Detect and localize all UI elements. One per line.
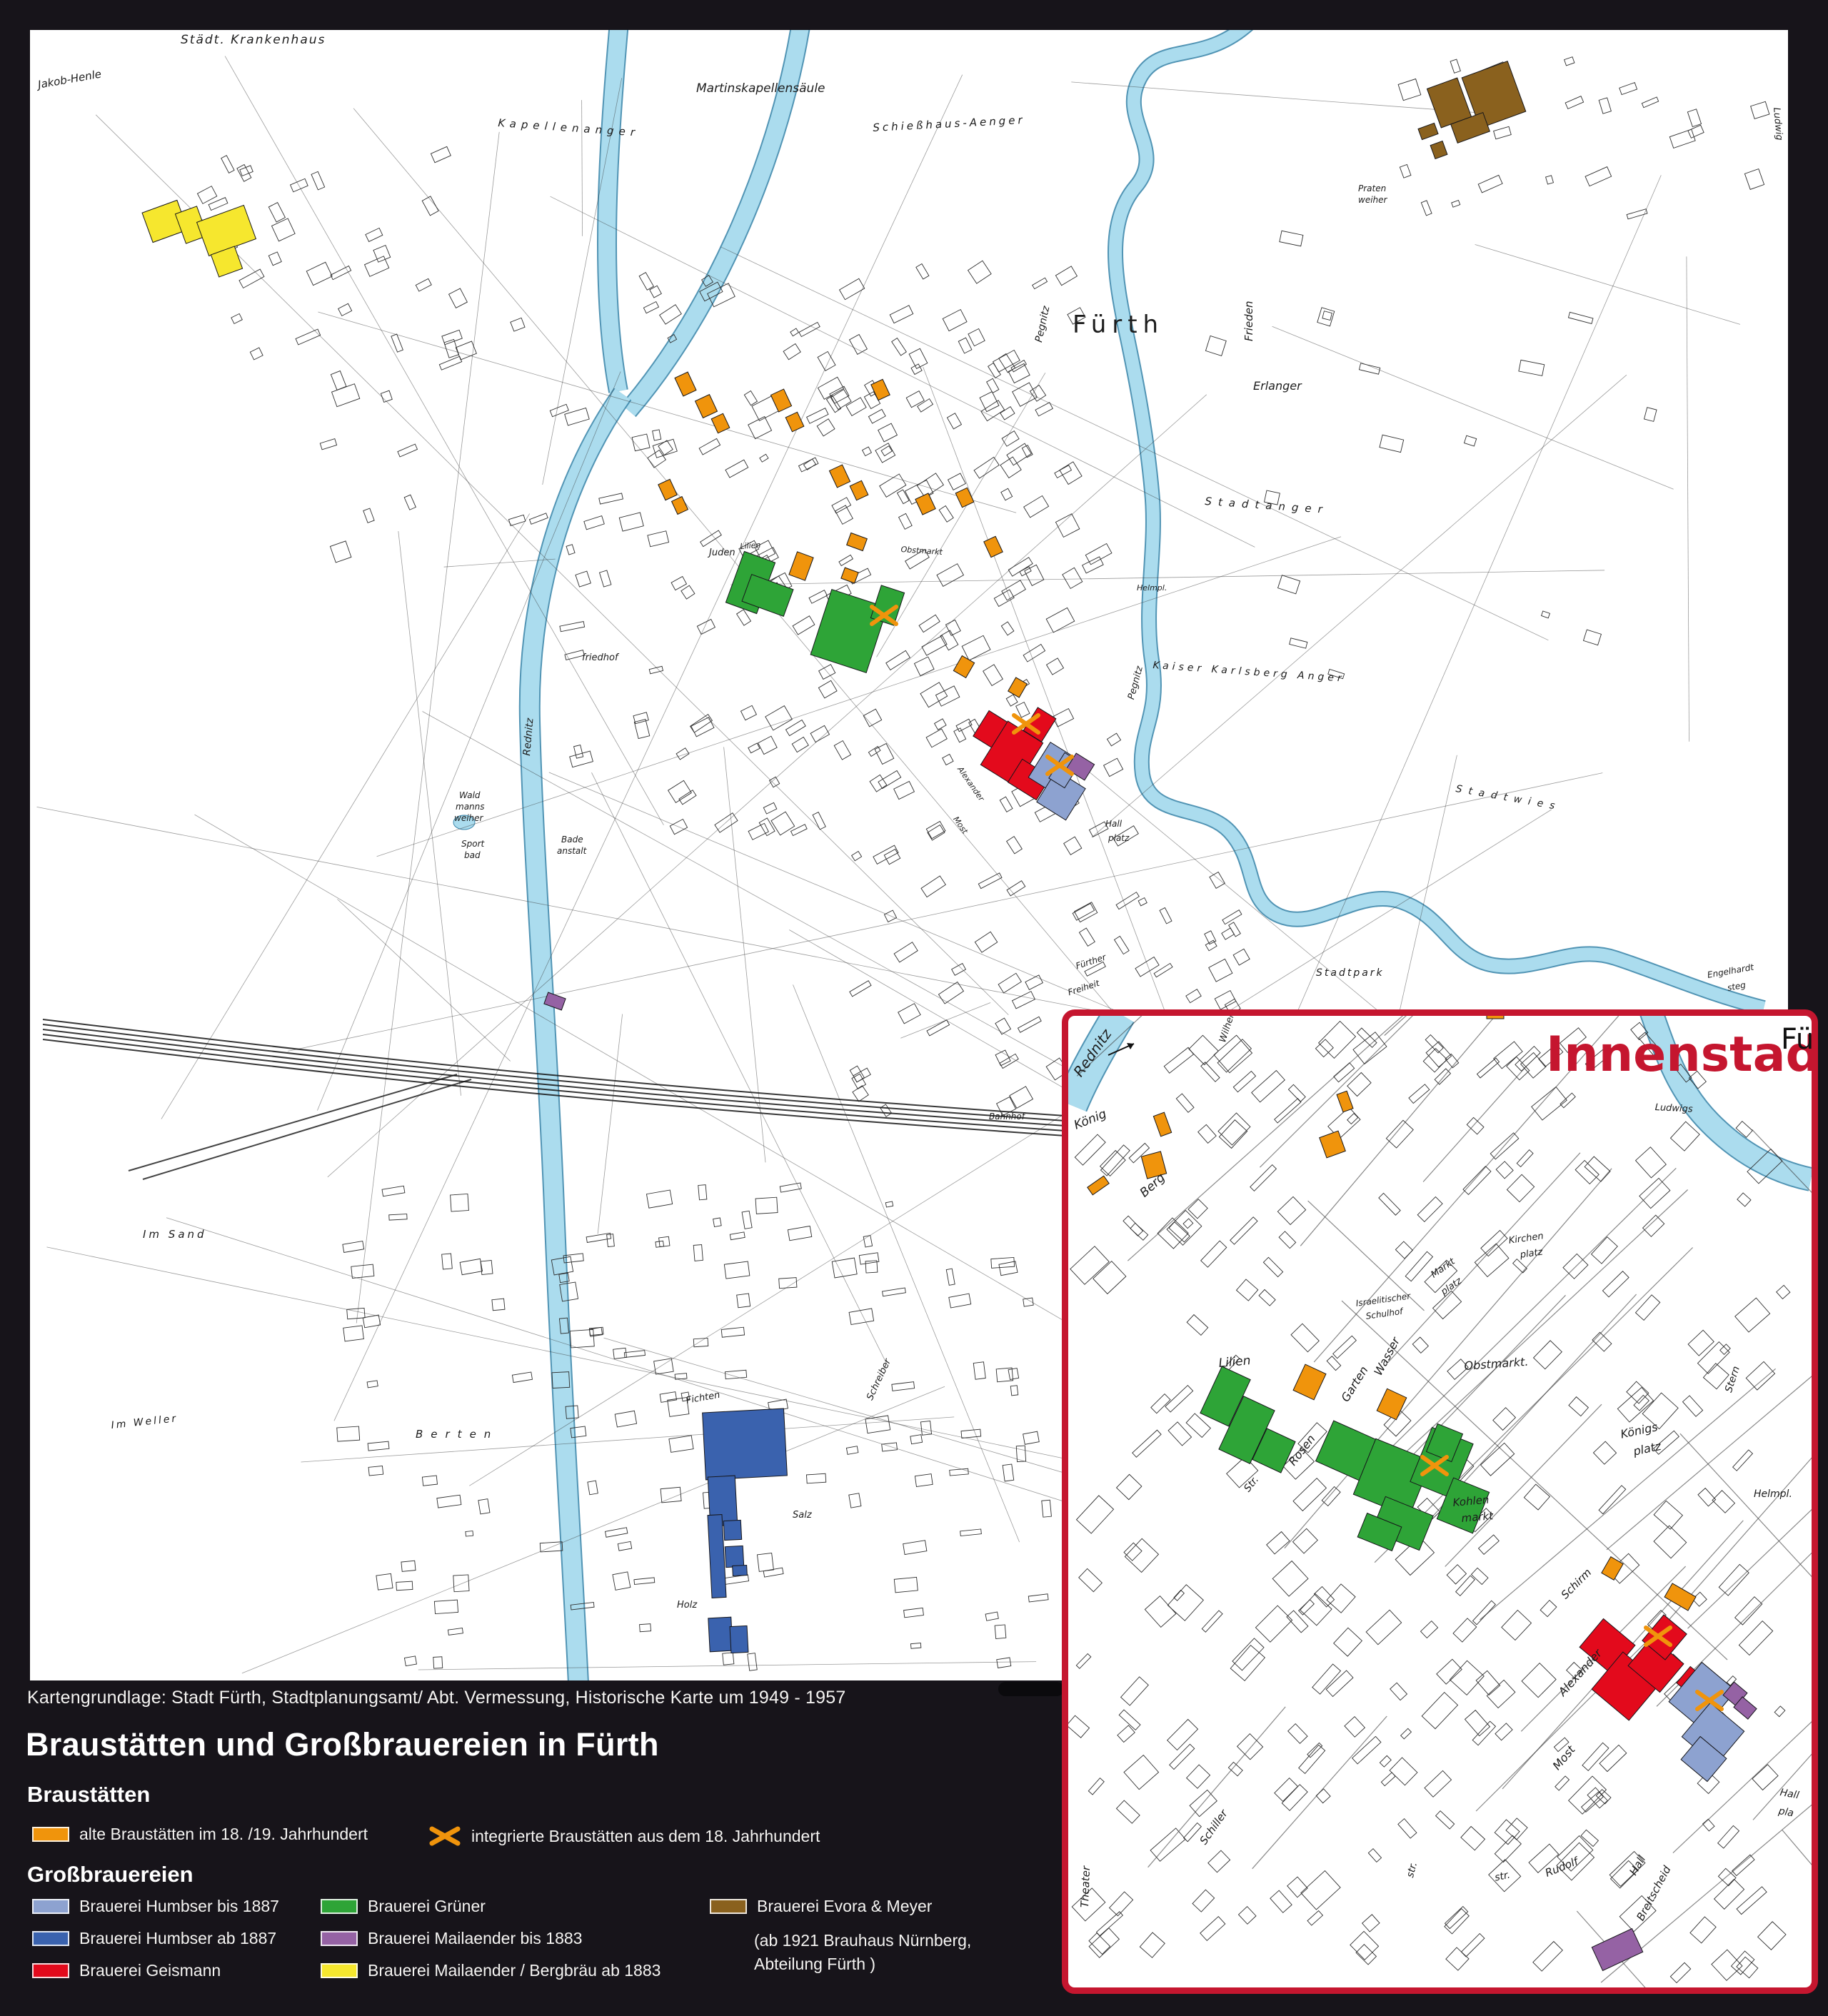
- map-label: Stadtanger: [1205, 496, 1329, 515]
- legend-item-subline: (ab 1921 Brauhaus Nürnberg,: [754, 1931, 971, 1950]
- map-label: str.: [1405, 1861, 1419, 1879]
- map-label: Garten: [1340, 1364, 1370, 1403]
- legend-swatch-lightblue: [32, 1899, 69, 1914]
- map-label: Holz: [677, 1601, 697, 1610]
- map-caption: Kartengrundlage: Stadt Fürth, Stadtplanu…: [27, 1688, 845, 1708]
- map-label: platz: [1440, 1276, 1463, 1297]
- map-label: Breitscheid: [1635, 1865, 1673, 1922]
- map-label: Stadtwies: [1455, 784, 1562, 812]
- legend-item-label: Brauerei Humbser bis 1887: [79, 1897, 279, 1916]
- legend-swatch-brown: [710, 1899, 747, 1914]
- map-label: Schießhaus-Aenger: [873, 115, 1025, 133]
- inset-partial-label: Fü: [1781, 1025, 1814, 1054]
- map-label: platz: [1632, 1441, 1662, 1458]
- map-label: steg: [1727, 980, 1747, 992]
- legend-item-label: Brauerei Geismann: [79, 1961, 221, 1980]
- map-label: Berg: [1138, 1171, 1167, 1199]
- map-label: Rosen: [1287, 1433, 1317, 1468]
- map-label: Obstmarkt.: [1464, 1356, 1529, 1372]
- legend-item-label: Brauerei Humbser ab 1887: [79, 1929, 276, 1948]
- map-label: Im Weller: [111, 1413, 179, 1431]
- map-label: Kohlen: [1452, 1495, 1490, 1508]
- legend-heading-grossbrauereien: Großbrauereien: [27, 1862, 194, 1888]
- inset-title: Innenstadt: [1546, 1031, 1818, 1079]
- map-label: weiher: [1358, 196, 1387, 204]
- map-label: Lilien: [1218, 1355, 1251, 1370]
- redaction-tag: [998, 1682, 1064, 1696]
- legend-column: Brauerei Humbser bis 1887Brauerei Humbse…: [32, 1899, 279, 1995]
- legend-item: Brauerei Mailaender bis 1883: [321, 1931, 661, 1946]
- legend-column: Brauerei GrünerBrauerei Mailaender bis 1…: [321, 1899, 661, 1995]
- map-label: Städt. Krankenhaus: [181, 34, 326, 46]
- legend-item-label: Brauerei Mailaender / Bergbräu ab 1883: [368, 1961, 661, 1980]
- map-label: Helmpl.: [1137, 584, 1167, 592]
- map-label: Most: [952, 815, 969, 835]
- map-label: Erlanger: [1253, 380, 1302, 392]
- map-label: Sport: [461, 840, 484, 848]
- map-label: Freiheit: [1067, 979, 1100, 997]
- legend-item-label: Brauerei Evora & Meyer: [757, 1897, 932, 1916]
- map-label: Pegnitz: [1127, 665, 1145, 701]
- legend-item: Brauerei Geismann: [32, 1963, 279, 1978]
- map-label: Juden: [709, 548, 735, 558]
- map-label: Berten: [416, 1429, 498, 1440]
- map-label: markt: [1461, 1511, 1494, 1524]
- legend-item-label: Brauerei Grüner: [368, 1897, 486, 1916]
- map-label: Hall: [1628, 1854, 1647, 1877]
- legend-item-label: Brauerei Mailaender bis 1883: [368, 1929, 582, 1948]
- map-label: str.: [1494, 1870, 1511, 1883]
- map-label: Engelhardt: [1707, 963, 1754, 979]
- map-label: Alexander: [1557, 1648, 1604, 1698]
- page-title: Braustätten und Großbrauereien in Fürth: [26, 1726, 659, 1763]
- legend-item-label: alte Braustätten im 18. /19. Jahrhundert: [79, 1825, 368, 1844]
- map-label: Rednitz: [1071, 1027, 1114, 1079]
- map-label: Frieden: [1244, 301, 1255, 341]
- inset-map: InnenstadtFüRednitzKönigBergLudwigsWilhe…: [1062, 1009, 1818, 1994]
- map-label: Markt: [1430, 1257, 1457, 1280]
- map-label: Theater: [1080, 1866, 1092, 1908]
- legend-item: Brauerei Evora & Meyer: [710, 1899, 971, 1914]
- map-label: Martinskapellensäule: [696, 83, 825, 95]
- legend-item-label: integrierte Braustätten aus dem 18. Jahr…: [471, 1827, 820, 1846]
- map-label: Ludwigs: [1654, 1103, 1693, 1114]
- map-label: Lilien: [740, 541, 761, 550]
- map-label: Jakob-Henle: [37, 69, 102, 90]
- legend-heading-braustaetten: Braustätten: [27, 1782, 150, 1808]
- map-label: Hall: [1779, 1788, 1800, 1800]
- map-label: Königs: [1619, 1421, 1659, 1441]
- map-label: Kaiser Karlsberg Anger: [1152, 660, 1345, 684]
- map-label: Kirchen: [1508, 1231, 1544, 1246]
- legend-swatch-blue: [32, 1931, 69, 1946]
- map-label: Pegnitz: [1034, 306, 1051, 343]
- map-label: Salz: [793, 1511, 812, 1520]
- map-label: Fichten: [685, 1391, 720, 1406]
- map-label: Stern: [1724, 1365, 1742, 1393]
- legend-column: Brauerei Evora & Meyer(ab 1921 Brauhaus …: [710, 1899, 971, 1978]
- map-label: anstalt: [557, 847, 586, 855]
- map-label: Schirm: [1560, 1567, 1594, 1601]
- legend-item: Brauerei Humbser ab 1887: [32, 1931, 279, 1946]
- inset-map-labels: InnenstadtFüRednitzKönigBergLudwigsWilhe…: [1068, 1016, 1812, 1987]
- map-label: platz: [1520, 1248, 1543, 1260]
- map-label: Wasser: [1372, 1336, 1402, 1378]
- legend-swatch-orange: [32, 1827, 69, 1842]
- map-label: Israelitischer: [1355, 1291, 1411, 1308]
- legend-swatch-yellow: [321, 1963, 358, 1978]
- map-label: Bade: [561, 835, 583, 844]
- map-label: Hall: [1105, 820, 1122, 828]
- legend-item: alte Braustätten im 18. /19. Jahrhundert: [32, 1825, 368, 1844]
- map-label: Schulhof: [1365, 1307, 1403, 1321]
- legend-item: integrierte Braustätten aus dem 18. Jahr…: [428, 1825, 820, 1848]
- map-label: Wilhelm: [1218, 1009, 1239, 1044]
- legend-item: Brauerei Mailaender / Bergbräu ab 1883: [321, 1963, 661, 1978]
- map-label: weiher: [454, 814, 483, 822]
- map-label: Rudolf: [1544, 1856, 1580, 1879]
- legend-swatch-purple: [321, 1931, 358, 1946]
- map-label: Stadtpark: [1316, 968, 1385, 978]
- map-label: Fürth: [1073, 313, 1164, 337]
- legend-item-subline: Abteilung Fürth ): [754, 1955, 971, 1974]
- map-label: Alexander: [956, 765, 985, 802]
- map-label: platz: [1108, 834, 1129, 842]
- map-label: Wald: [459, 791, 481, 800]
- map-label: Most: [1551, 1744, 1577, 1773]
- map-label: Praten: [1358, 184, 1386, 193]
- legend-item: Brauerei Humbser bis 1887: [32, 1899, 279, 1914]
- map-label: manns: [456, 802, 485, 811]
- map-label: Im Sand: [143, 1229, 207, 1240]
- map-label: Obstmarkt: [900, 545, 943, 556]
- map-label: Rednitz: [522, 717, 536, 756]
- map-label: Helmpl.: [1754, 1489, 1792, 1499]
- integrated-brewery-cross-icon: [428, 1825, 461, 1848]
- map-label: König: [1073, 1108, 1108, 1132]
- map-label: Str.: [1242, 1475, 1260, 1494]
- legend-swatch-green: [321, 1899, 358, 1914]
- map-label: Ludwig: [1772, 107, 1784, 141]
- legend-item: Brauerei Grüner: [321, 1899, 661, 1914]
- map-label: pla: [1778, 1806, 1794, 1818]
- map-label: bad: [464, 851, 481, 860]
- map-label: Kapellenanger: [498, 118, 640, 138]
- map-label: Schreiber: [865, 1358, 893, 1402]
- map-label: Fürther: [1075, 953, 1107, 971]
- legend-swatch-red: [32, 1963, 69, 1978]
- map-label: Schiller: [1198, 1808, 1230, 1847]
- map-label: friedhof: [582, 653, 618, 662]
- map-label: Bahnhof: [989, 1112, 1025, 1121]
